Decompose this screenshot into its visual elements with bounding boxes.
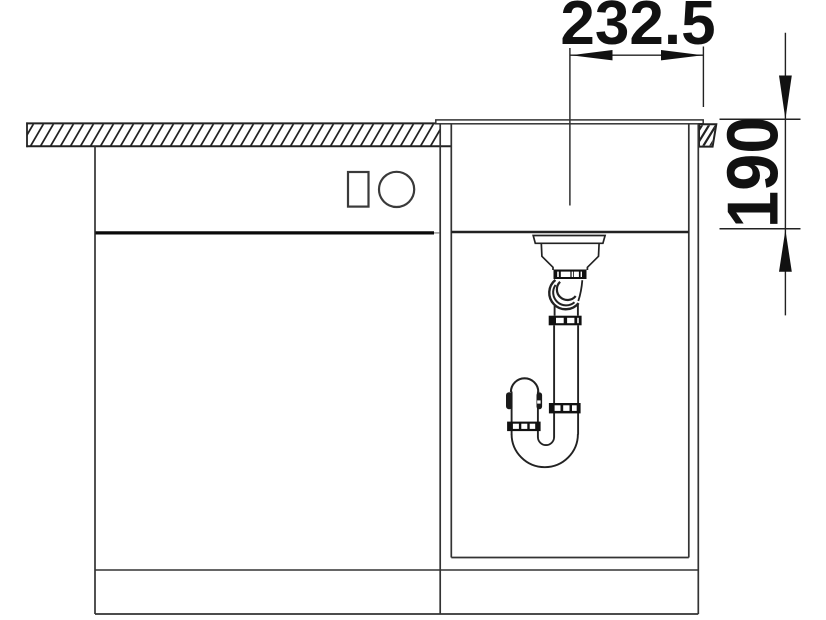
- svg-text:190: 190: [712, 116, 793, 228]
- svg-text:232.5: 232.5: [560, 0, 715, 58]
